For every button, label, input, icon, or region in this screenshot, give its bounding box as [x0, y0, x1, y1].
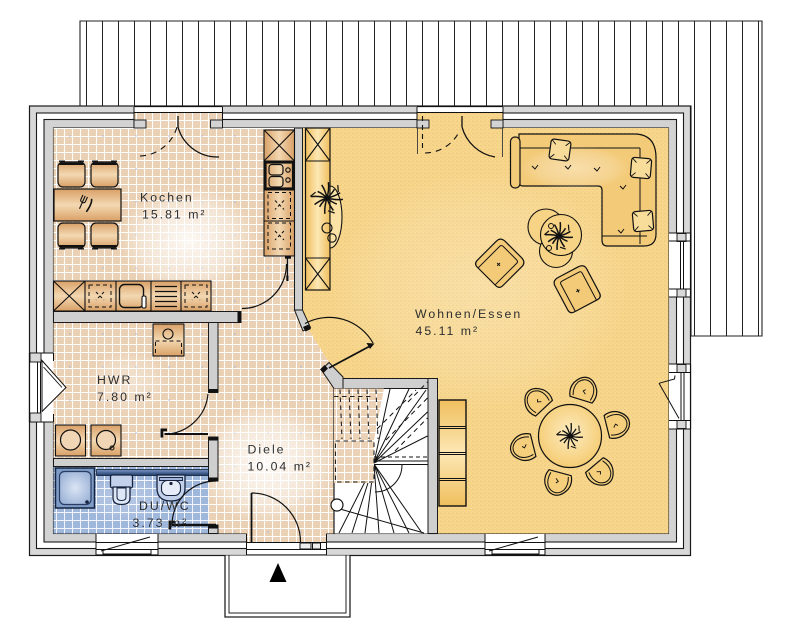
svg-text:10.04 m²: 10.04 m²	[248, 460, 313, 474]
svg-text:7.80 m²: 7.80 m²	[97, 390, 153, 404]
svg-text:15.81 m²: 15.81 m²	[142, 208, 207, 222]
svg-text:45.11 m²: 45.11 m²	[416, 324, 480, 338]
svg-text:3.73 m²: 3.73 m²	[133, 516, 189, 530]
svg-text:Kochen: Kochen	[140, 191, 194, 205]
svg-text:DU/WC: DU/WC	[139, 499, 191, 513]
svg-text:Diele: Diele	[248, 443, 286, 457]
svg-text:HWR: HWR	[97, 373, 132, 387]
svg-text:Wohnen/Essen: Wohnen/Essen	[415, 307, 522, 321]
